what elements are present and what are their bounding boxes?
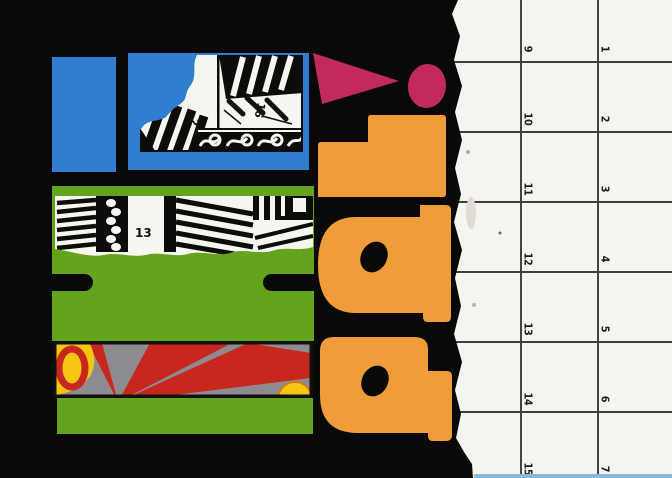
letter-a-counter <box>355 237 393 277</box>
grid-line-horizontal <box>448 271 672 273</box>
green-block <box>52 186 314 341</box>
calendar-day: 14 <box>522 393 535 406</box>
calendar-day: 1 <box>599 46 612 52</box>
yellow-sun-half <box>278 382 312 416</box>
grid-line-horizontal <box>448 131 672 133</box>
sun-ray <box>118 343 311 402</box>
photo-fragment-balcony: 16 2 <box>140 55 304 156</box>
calendar-day: 5 <box>599 326 612 332</box>
letter-p-counter <box>356 361 394 401</box>
exclamation-triangle <box>313 53 399 104</box>
calendar-day: 4 <box>599 256 612 262</box>
calendar-day: 13 <box>522 323 535 336</box>
razor-notch-right <box>263 274 321 291</box>
letter-p <box>320 337 452 441</box>
grid-line-horizontal <box>448 201 672 203</box>
fragment-number-2: 2 <box>187 118 201 127</box>
sun-ray <box>88 343 118 402</box>
rope-column-icon <box>106 199 121 251</box>
scan-edge-strip <box>474 474 672 478</box>
fragment-number-13: 13 <box>135 226 152 240</box>
letter-l <box>318 115 446 197</box>
calendar-day: 11 <box>522 183 535 196</box>
calendar-day: 10 <box>522 113 535 126</box>
siding-stripes <box>176 200 253 255</box>
letter-a <box>318 205 451 322</box>
calendar-day: 2 <box>599 116 612 122</box>
grid-line-horizontal <box>448 61 672 63</box>
green-band-bottom <box>57 398 313 434</box>
sun-ray <box>118 343 232 402</box>
exclamation-dot <box>406 62 448 110</box>
word-pal <box>313 53 452 441</box>
awning-bar <box>219 55 303 99</box>
grid-line-vertical <box>520 0 522 478</box>
photo-fragment-facade: 13 <box>55 196 313 256</box>
fragment-number-16: 16 <box>252 101 268 119</box>
shutter-slats-icon <box>146 104 204 156</box>
calendar-day: 6 <box>599 396 612 402</box>
wrought-iron-band <box>197 128 303 151</box>
sunray-band <box>55 343 312 416</box>
grid-line-horizontal <box>448 411 672 413</box>
red-loop <box>59 349 85 387</box>
paper-speck <box>466 150 470 154</box>
postcard-scan: 9 10 11 12 13 14 15 1 2 3 4 5 6 7 <box>0 0 672 478</box>
grid-line-vertical <box>597 0 599 478</box>
glass-reflection-strokes <box>229 98 286 119</box>
calendar-day: 3 <box>599 186 612 192</box>
razor-notch-left <box>45 274 93 291</box>
blue-rect-large <box>128 53 309 170</box>
grid-line-horizontal <box>448 341 672 343</box>
calendar-day: 7 <box>599 466 612 472</box>
yellow-flame-shape <box>56 344 94 395</box>
calendar-day: 12 <box>522 253 535 266</box>
paper-speck <box>472 303 476 307</box>
blue-rect-small <box>52 57 116 172</box>
torn-black-field <box>0 0 473 478</box>
louver-slats-icon <box>57 200 96 248</box>
collage-artwork: 16 2 <box>0 0 672 478</box>
paper-speck <box>499 232 502 235</box>
calendar-day: 9 <box>522 46 535 52</box>
